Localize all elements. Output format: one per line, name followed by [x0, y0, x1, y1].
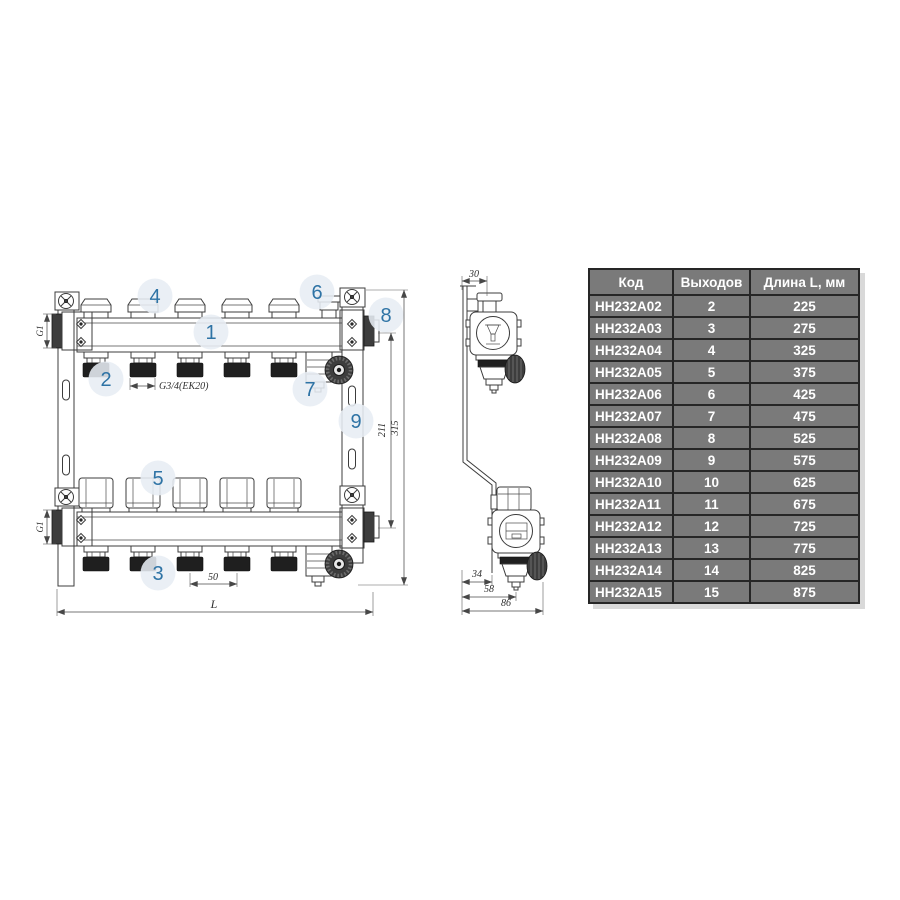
- dim-side58-label: 58: [484, 584, 494, 595]
- table-row: НН232А077475: [589, 405, 859, 427]
- dim-g1-bottom-label: G1: [35, 522, 45, 533]
- dim-g1-top-label: G1: [35, 326, 45, 337]
- spec-table: Код Выходов Длина L, мм НН232А022225НН23…: [588, 268, 860, 604]
- callout-6: 6: [300, 275, 335, 310]
- svg-text:7: 7: [304, 379, 315, 401]
- cell-outputs: 13: [673, 537, 750, 559]
- cell-code: НН232А09: [589, 449, 673, 471]
- cell-length: 875: [750, 581, 859, 603]
- cell-code: НН232А11: [589, 493, 673, 515]
- dim-side86-label: 86: [501, 598, 511, 609]
- cell-length: 425: [750, 383, 859, 405]
- svg-text:2: 2: [100, 369, 111, 391]
- cell-code: НН232А13: [589, 537, 673, 559]
- cell-code: НН232А02: [589, 295, 673, 317]
- cell-outputs: 14: [673, 559, 750, 581]
- cell-length: 725: [750, 515, 859, 537]
- dim-side30-label: 30: [468, 269, 479, 280]
- callout-7: 7: [293, 372, 328, 407]
- cell-code: НН232А07: [589, 405, 673, 427]
- cell-code: НН232А12: [589, 515, 673, 537]
- svg-text:8: 8: [380, 305, 391, 327]
- cell-code: НН232А03: [589, 317, 673, 339]
- dim-outlet-thread-label: G3/4(EK20): [159, 381, 209, 392]
- cell-length: 275: [750, 317, 859, 339]
- table-row: НН232А1414825: [589, 559, 859, 581]
- table-row: НН232А1010625: [589, 471, 859, 493]
- table-row: НН232А088525: [589, 427, 859, 449]
- page: G1 G1 G3/4(EK20) 50 L: [0, 0, 900, 900]
- cell-code: НН232А14: [589, 559, 673, 581]
- cell-outputs: 8: [673, 427, 750, 449]
- dim-height-total-label: 315: [390, 421, 401, 437]
- table-row: НН232А044325: [589, 339, 859, 361]
- cell-outputs: 9: [673, 449, 750, 471]
- svg-text:6: 6: [311, 282, 322, 304]
- cell-outputs: 4: [673, 339, 750, 361]
- col-header-code: Код: [589, 269, 673, 295]
- cell-length: 525: [750, 427, 859, 449]
- svg-text:1: 1: [205, 322, 216, 344]
- cell-code: НН232А15: [589, 581, 673, 603]
- cell-outputs: 15: [673, 581, 750, 603]
- svg-text:4: 4: [149, 286, 160, 308]
- callout-4: 4: [138, 279, 173, 314]
- table-row: НН232А1515875: [589, 581, 859, 603]
- table-header-row: Код Выходов Длина L, мм: [589, 269, 859, 295]
- cell-code: НН232А08: [589, 427, 673, 449]
- table-row: НН232А099575: [589, 449, 859, 471]
- table-row: НН232А055375: [589, 361, 859, 383]
- side-view-drawing: 30 34 58 86: [460, 269, 547, 615]
- spec-table-body: НН232А022225НН232А033275НН232А044325НН23…: [589, 295, 859, 603]
- table-row: НН232А1212725: [589, 515, 859, 537]
- cell-outputs: 11: [673, 493, 750, 515]
- dim-height-axes-label: 211: [377, 423, 388, 437]
- cell-outputs: 5: [673, 361, 750, 383]
- table-row: НН232А033275: [589, 317, 859, 339]
- cell-length: 675: [750, 493, 859, 515]
- cell-code: НН232А10: [589, 471, 673, 493]
- table-row: НН232А066425: [589, 383, 859, 405]
- side-bottom-assembly: [488, 487, 547, 590]
- col-header-outputs: Выходов: [673, 269, 750, 295]
- cell-length: 825: [750, 559, 859, 581]
- svg-text:3: 3: [152, 563, 163, 585]
- cell-outputs: 3: [673, 317, 750, 339]
- table-row: НН232А1111675: [589, 493, 859, 515]
- cell-length: 775: [750, 537, 859, 559]
- dim-side34-label: 34: [471, 569, 482, 580]
- cell-length: 325: [750, 339, 859, 361]
- cell-outputs: 2: [673, 295, 750, 317]
- dim-spacing-label: 50: [208, 572, 218, 583]
- col-header-length: Длина L, мм: [750, 269, 859, 295]
- cell-outputs: 12: [673, 515, 750, 537]
- cell-outputs: 7: [673, 405, 750, 427]
- callout-3: 3: [141, 556, 176, 591]
- cell-outputs: 10: [673, 471, 750, 493]
- cell-outputs: 6: [673, 383, 750, 405]
- side-top-assembly: [466, 293, 525, 393]
- callout-9: 9: [339, 404, 374, 439]
- callout-8: 8: [369, 298, 404, 333]
- dim-length-label: L: [210, 597, 218, 611]
- cell-length: 575: [750, 449, 859, 471]
- cell-length: 475: [750, 405, 859, 427]
- cell-length: 375: [750, 361, 859, 383]
- table-row: НН232А1313775: [589, 537, 859, 559]
- bottom-manifold-bar: [52, 478, 347, 571]
- cell-code: НН232А04: [589, 339, 673, 361]
- callout-2: 2: [89, 362, 124, 397]
- cell-code: НН232А06: [589, 383, 673, 405]
- bottom-drain-valve: [306, 546, 353, 586]
- cell-length: 625: [750, 471, 859, 493]
- callout-5: 5: [141, 461, 176, 496]
- svg-text:5: 5: [152, 468, 163, 490]
- svg-text:9: 9: [350, 411, 361, 433]
- callout-1: 1: [194, 315, 229, 350]
- cell-code: НН232А05: [589, 361, 673, 383]
- cell-length: 225: [750, 295, 859, 317]
- table-row: НН232А022225: [589, 295, 859, 317]
